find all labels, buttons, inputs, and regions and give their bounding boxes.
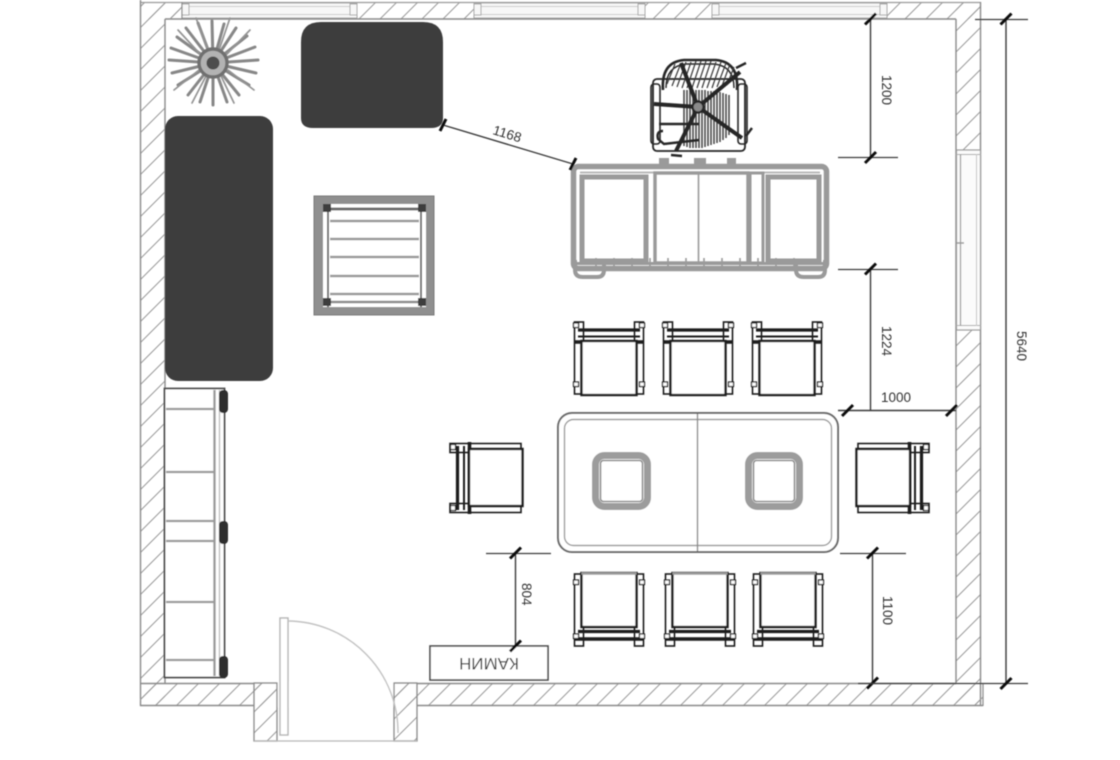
svg-text:1000: 1000 [881,390,911,405]
svg-text:КАМИН: КАМИН [459,654,519,673]
svg-text:1224: 1224 [879,326,894,357]
svg-text:1100: 1100 [880,596,895,625]
svg-text:804: 804 [519,583,534,606]
svg-text:1200: 1200 [879,75,894,105]
svg-text:5640: 5640 [1014,331,1029,361]
